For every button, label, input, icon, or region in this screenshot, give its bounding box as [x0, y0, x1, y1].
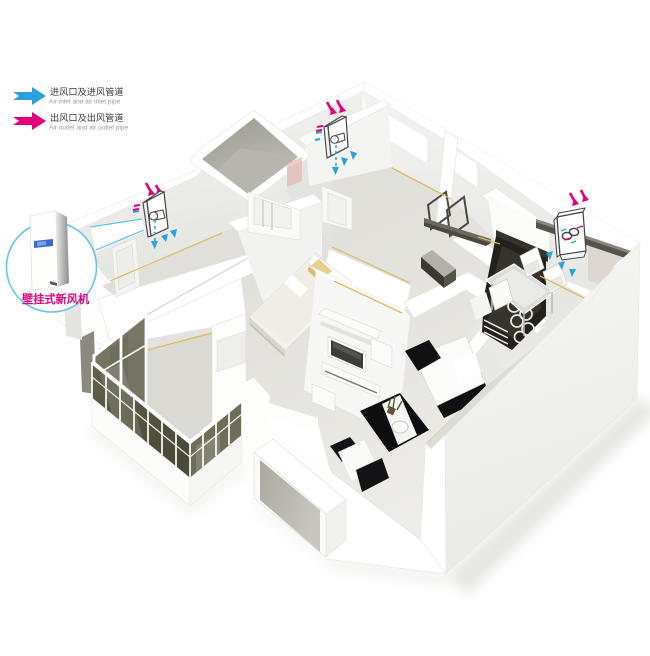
svg-text:进风口及进风管道: 进风口及进风管道: [50, 86, 124, 97]
svg-text:Air outlet and air outlet pipe: Air outlet and air outlet pipe: [49, 125, 129, 132]
svg-text:壁挂式新风机: 壁挂式新风机: [22, 292, 90, 306]
svg-text:出风口及出风管道: 出风口及出风管道: [50, 112, 124, 123]
svg-text:Air inlet and air inlet pipe: Air inlet and air inlet pipe: [49, 99, 121, 106]
